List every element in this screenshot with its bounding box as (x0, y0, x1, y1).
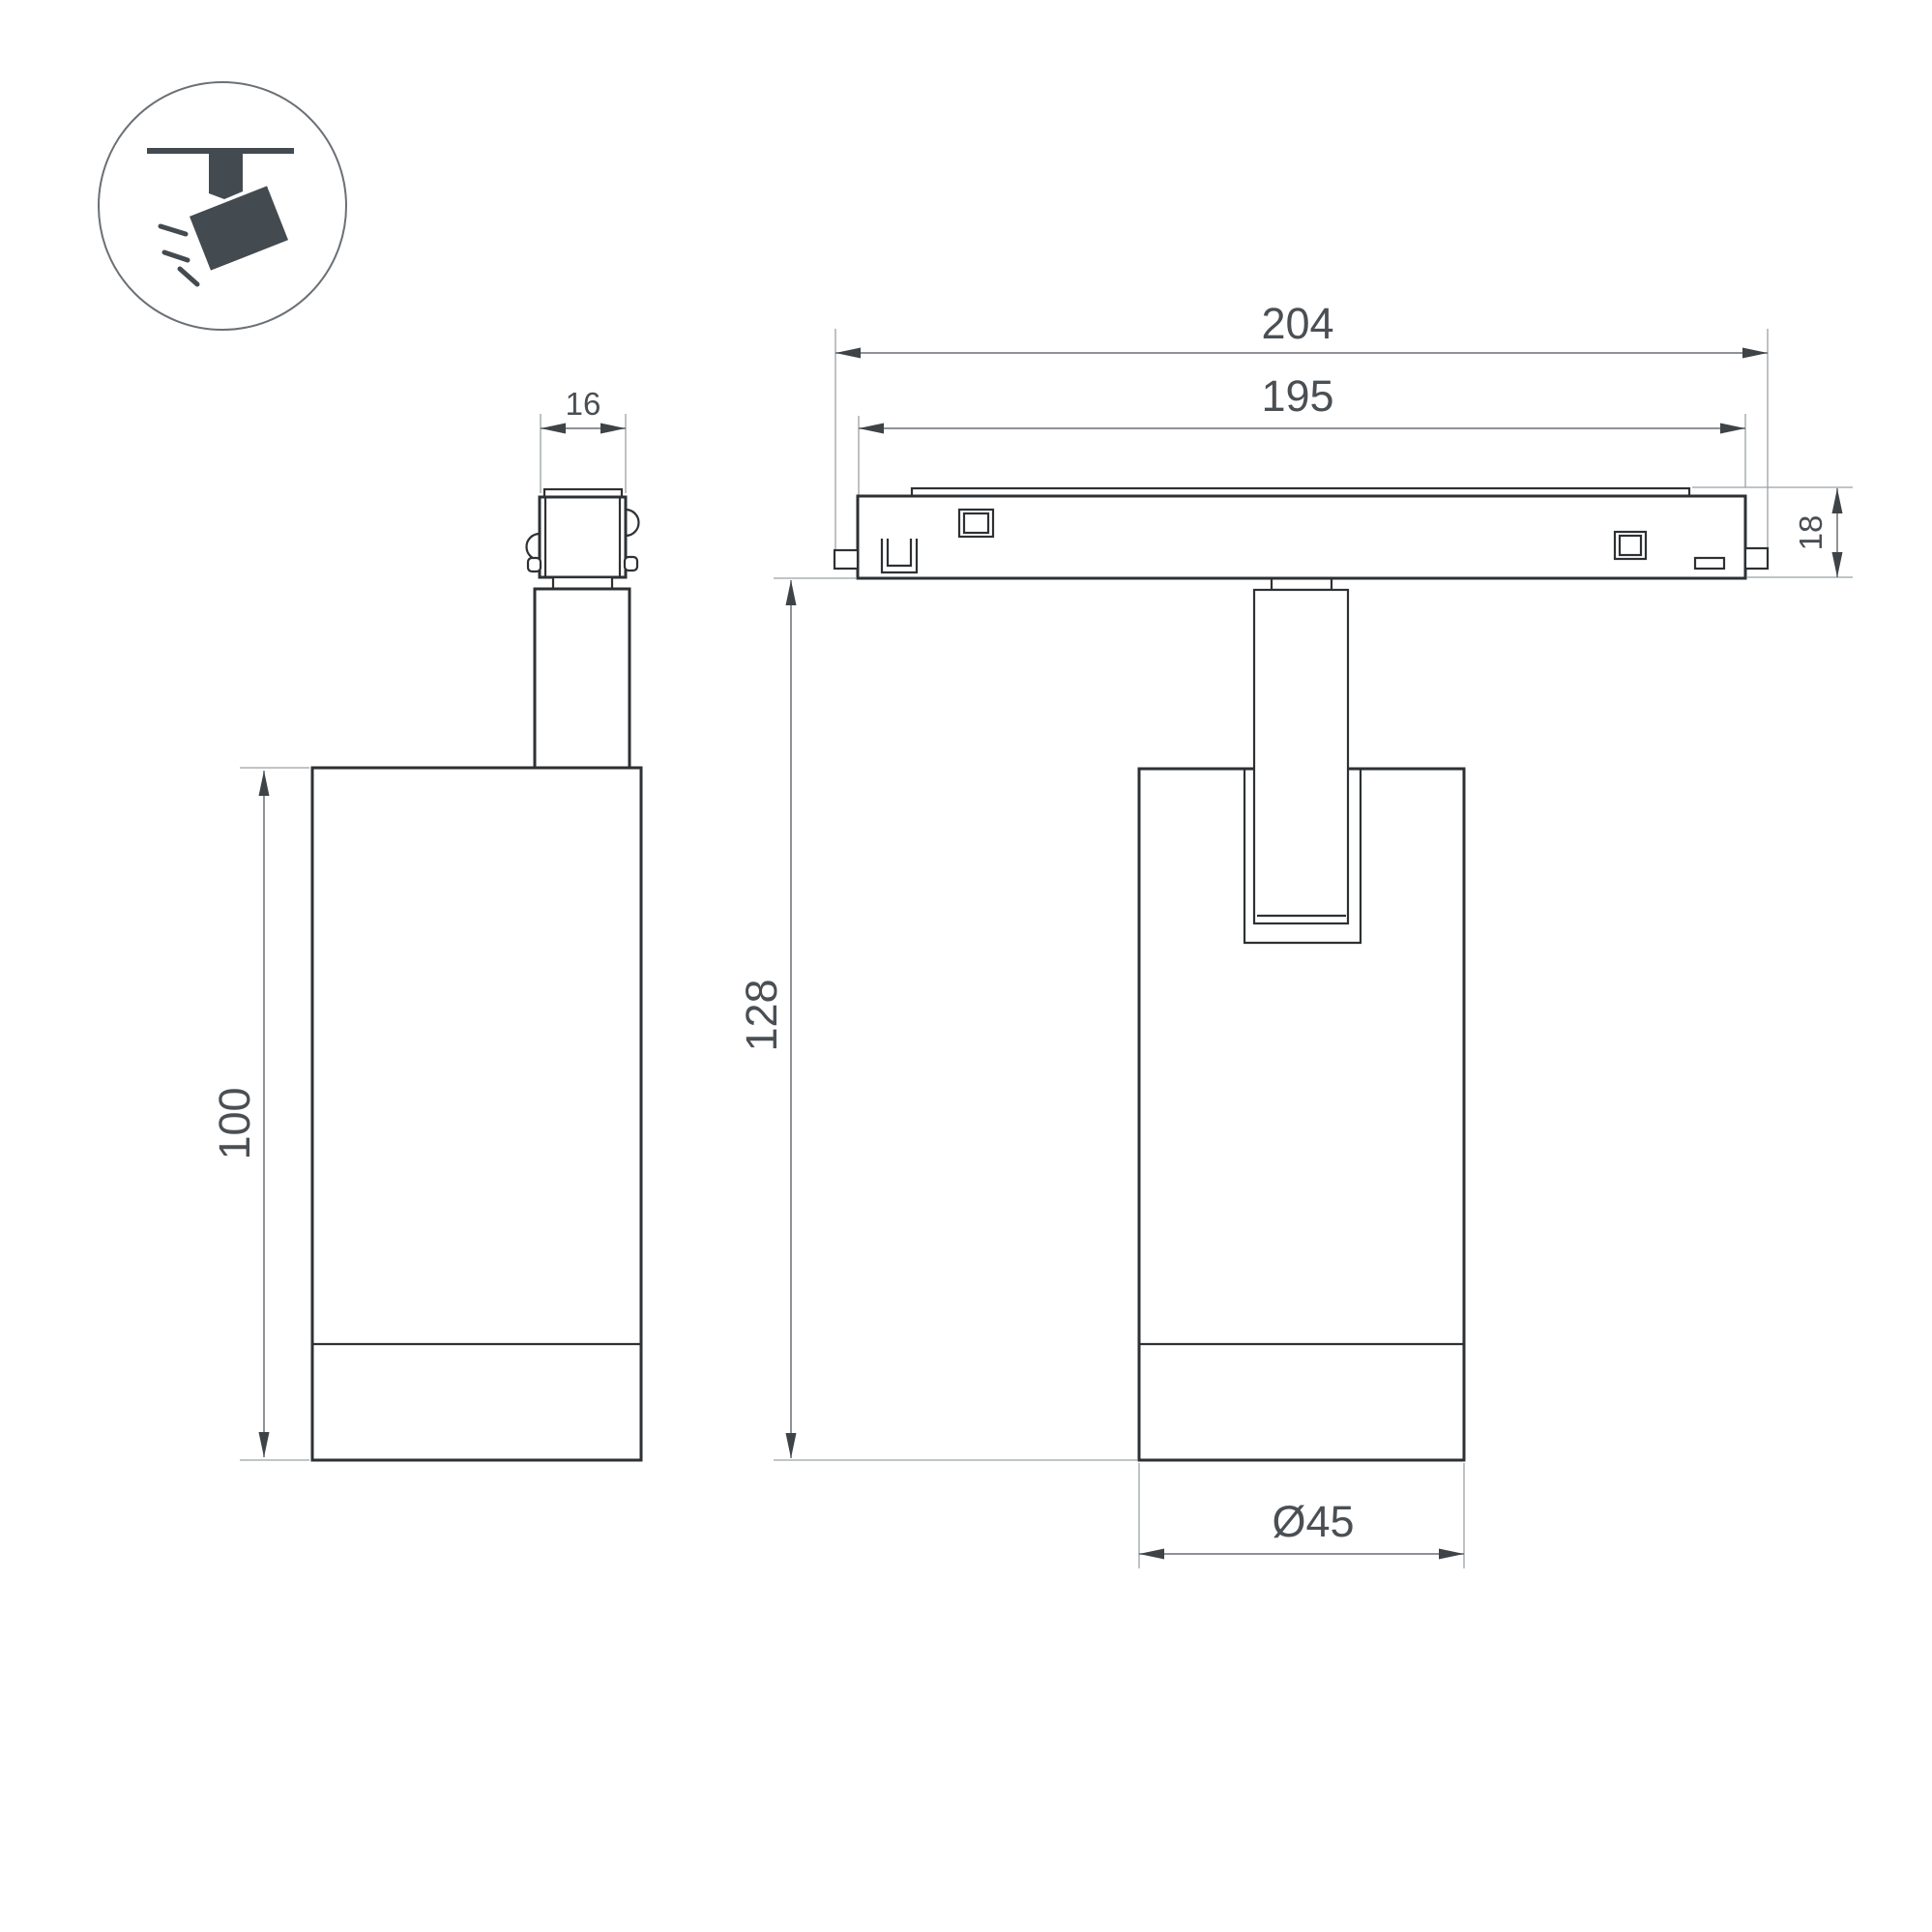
dim-label-195: 195 (1261, 371, 1333, 421)
arrowhead-right (1439, 1549, 1464, 1560)
track-end-tab-left (834, 550, 858, 569)
dim-body-diameter: Ø45 (1139, 1463, 1464, 1568)
side-swivel-stem (535, 589, 629, 768)
side-lamp-body (312, 768, 641, 1460)
front-lamp-body (1139, 590, 1464, 1460)
body-outline (312, 768, 641, 1460)
arrowhead-right (600, 424, 626, 434)
front-stem-collar (1272, 578, 1332, 590)
arrowhead-right (1742, 348, 1768, 359)
dim-label-204: 204 (1261, 299, 1333, 348)
front-swivel-stem (1254, 590, 1348, 923)
arrowhead-left (835, 348, 861, 359)
track-end-tab-right (1745, 548, 1768, 569)
arrowhead-left (541, 424, 566, 434)
arrowhead-right (1720, 424, 1745, 434)
dim-label-128: 128 (737, 979, 786, 1051)
arrowhead-left (1139, 1549, 1164, 1560)
connector-neck (553, 577, 612, 589)
arrowhead-left (859, 424, 884, 434)
dim-connector-width: 16 (541, 386, 626, 493)
arrowhead-down (786, 1433, 797, 1458)
dim-label-100: 100 (210, 1087, 259, 1159)
connector-body (540, 497, 626, 577)
dim-body-height: 100 (210, 768, 309, 1460)
dim-label-18: 18 (1793, 515, 1829, 551)
arrowhead-up (1832, 488, 1843, 513)
arrowhead-down (259, 1432, 270, 1457)
drawing-page: 16 100 (0, 0, 1932, 1932)
side-track-connector (527, 489, 639, 589)
dim-label-diameter-45: Ø45 (1272, 1497, 1354, 1546)
connector-tab-left (528, 558, 541, 571)
arrowhead-down (1832, 552, 1843, 577)
arrowhead-up (259, 771, 270, 796)
track-spotlight-icon (99, 82, 346, 330)
arrowhead-up (786, 580, 797, 605)
dim-label-16: 16 (566, 386, 601, 422)
dim-track-length: 195 (859, 371, 1745, 496)
side-view: 16 100 (210, 386, 641, 1460)
technical-drawing-canvas: 16 100 (0, 0, 1932, 1932)
connector-tab-right (625, 557, 637, 571)
front-view: 204 195 (737, 299, 1853, 1568)
connector-ear-left (527, 534, 541, 560)
front-track-adapter (834, 488, 1768, 578)
connector-ear-right (626, 510, 639, 536)
dim-total-height: 128 (737, 578, 1137, 1460)
icon-track-stem (209, 153, 243, 199)
